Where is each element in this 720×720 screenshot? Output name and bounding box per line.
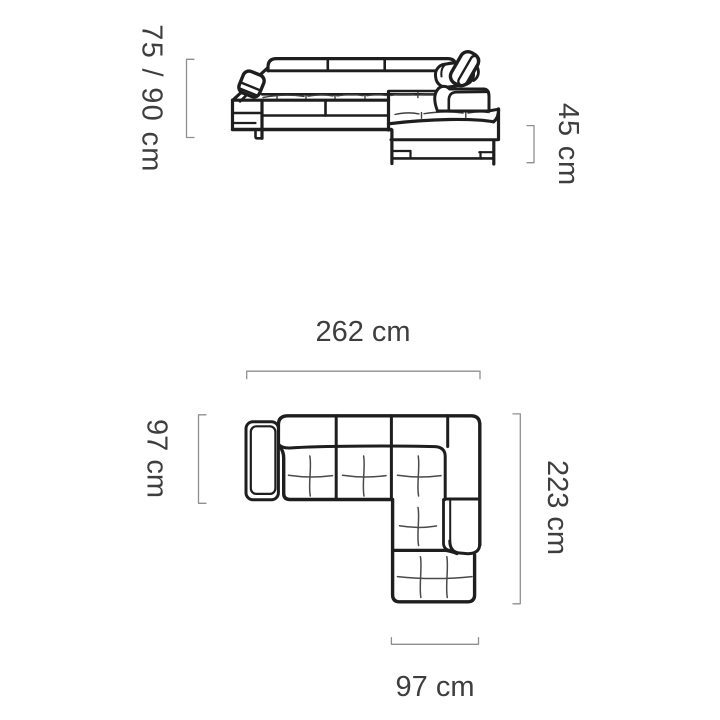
svg-text:97 cm: 97 cm	[396, 671, 475, 703]
svg-text:262 cm: 262 cm	[315, 316, 410, 348]
svg-text:75 / 90 cm: 75 / 90 cm	[136, 24, 168, 172]
svg-text:223 cm: 223 cm	[541, 460, 573, 555]
svg-text:45 cm: 45 cm	[552, 103, 584, 186]
svg-text:97 cm: 97 cm	[141, 419, 173, 498]
